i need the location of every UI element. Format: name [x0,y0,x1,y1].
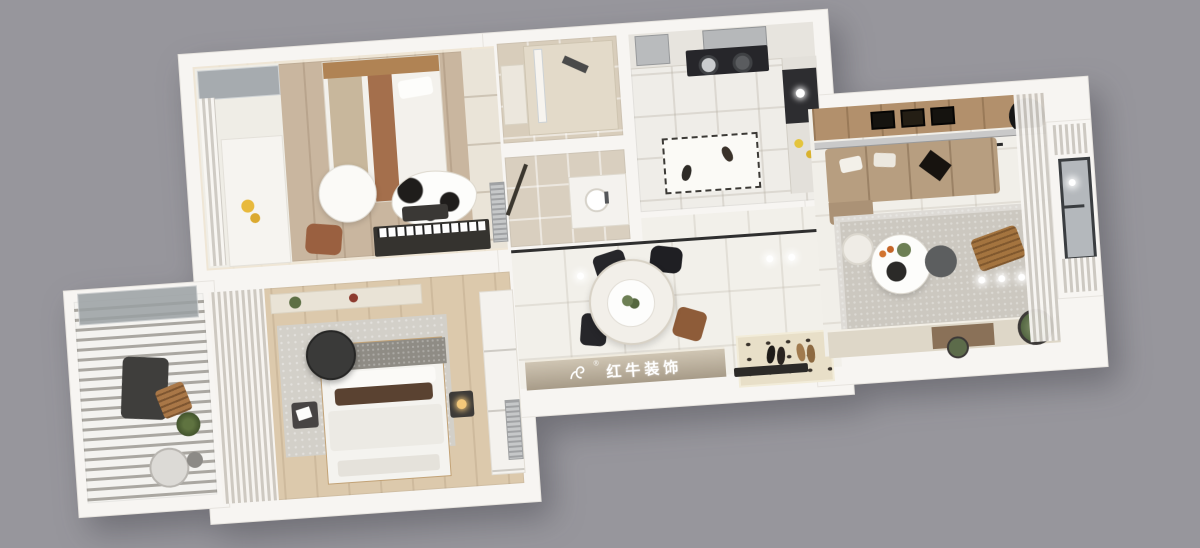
counter-light [796,88,806,98]
shoe-pair-tan [795,343,807,362]
nightstand-book [296,406,313,421]
fruit-2 [887,246,894,253]
kitchen-mat [662,132,762,195]
watermark-text: 红牛装饰 [606,355,683,381]
fruit-1 [879,250,886,257]
slipper-2 [720,145,735,163]
picture-frame-2 [900,108,925,128]
slipper-1 [680,164,693,182]
duvet-fold [328,404,445,452]
shoe-pair-dark-2 [777,347,786,365]
registered-mark: ® [593,361,599,368]
nightstand-right [449,390,475,418]
floorplan-render: ® 红牛装饰 [63,0,1113,531]
refrigerator [634,34,670,66]
picture-frame-1 [870,110,895,130]
sofa-pillow-2 [873,153,895,168]
nightstand-lamp-glow [456,399,467,410]
window-seat [221,135,292,267]
entry-mat [736,329,835,388]
pot-1 [698,54,719,75]
bed-pillow [397,76,434,100]
pot-2 [732,52,753,73]
shoe-pair-dark [766,345,776,364]
nightstand-left [291,401,319,429]
bay-curtain-fold-bottom [1059,256,1099,293]
sofa-pillow-1 [839,155,863,173]
window-mullion [1064,204,1084,208]
nook-window-glass [197,65,281,101]
decor-tray [886,261,907,282]
piano-bench [402,204,449,222]
brown-armchair [305,223,343,255]
shelf-vase [349,293,359,303]
shelf-plant [289,296,302,309]
faucet [604,191,609,203]
bull-logo-icon [569,364,588,381]
bath-vanity [500,64,528,126]
tan-fabric-sofa [825,137,1000,205]
picture-frame-3 [930,106,955,126]
pendant-greenery [619,293,642,310]
render-background: { "scene": { "render_type": "3d-top-down… [0,0,1200,548]
foot-bench [337,454,440,477]
window-reflection [1068,179,1075,186]
table-plant [897,242,912,257]
bay-curtain-fold-top [1050,123,1090,156]
washbasin-vanity [568,173,629,229]
shoe-pair-tan-2 [806,344,816,363]
sofa-throw-dark [919,150,952,181]
